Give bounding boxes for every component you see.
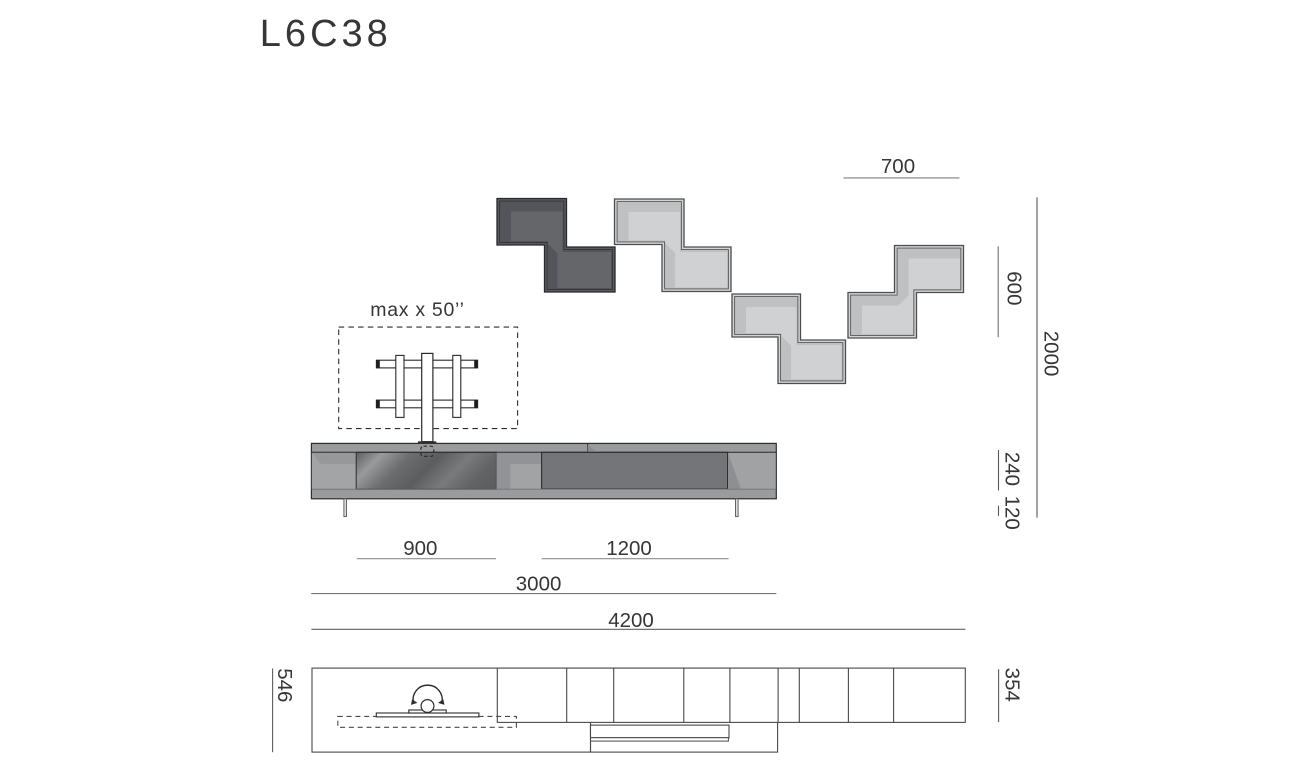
svg-text:1200: 1200 bbox=[606, 537, 652, 560]
svg-text:max x 50’’: max x 50’’ bbox=[370, 299, 464, 321]
svg-text:546: 546 bbox=[273, 668, 296, 702]
svg-text:700: 700 bbox=[881, 155, 915, 178]
svg-text:120: 120 bbox=[1001, 496, 1024, 530]
svg-text:354: 354 bbox=[1001, 668, 1024, 702]
svg-text:L6C38: L6C38 bbox=[260, 13, 392, 55]
svg-text:3000: 3000 bbox=[516, 573, 562, 596]
svg-text:2000: 2000 bbox=[1039, 331, 1062, 377]
svg-text:600: 600 bbox=[1003, 271, 1026, 305]
svg-text:240: 240 bbox=[1001, 452, 1024, 486]
svg-text:4200: 4200 bbox=[608, 609, 654, 632]
svg-text:900: 900 bbox=[403, 537, 437, 560]
